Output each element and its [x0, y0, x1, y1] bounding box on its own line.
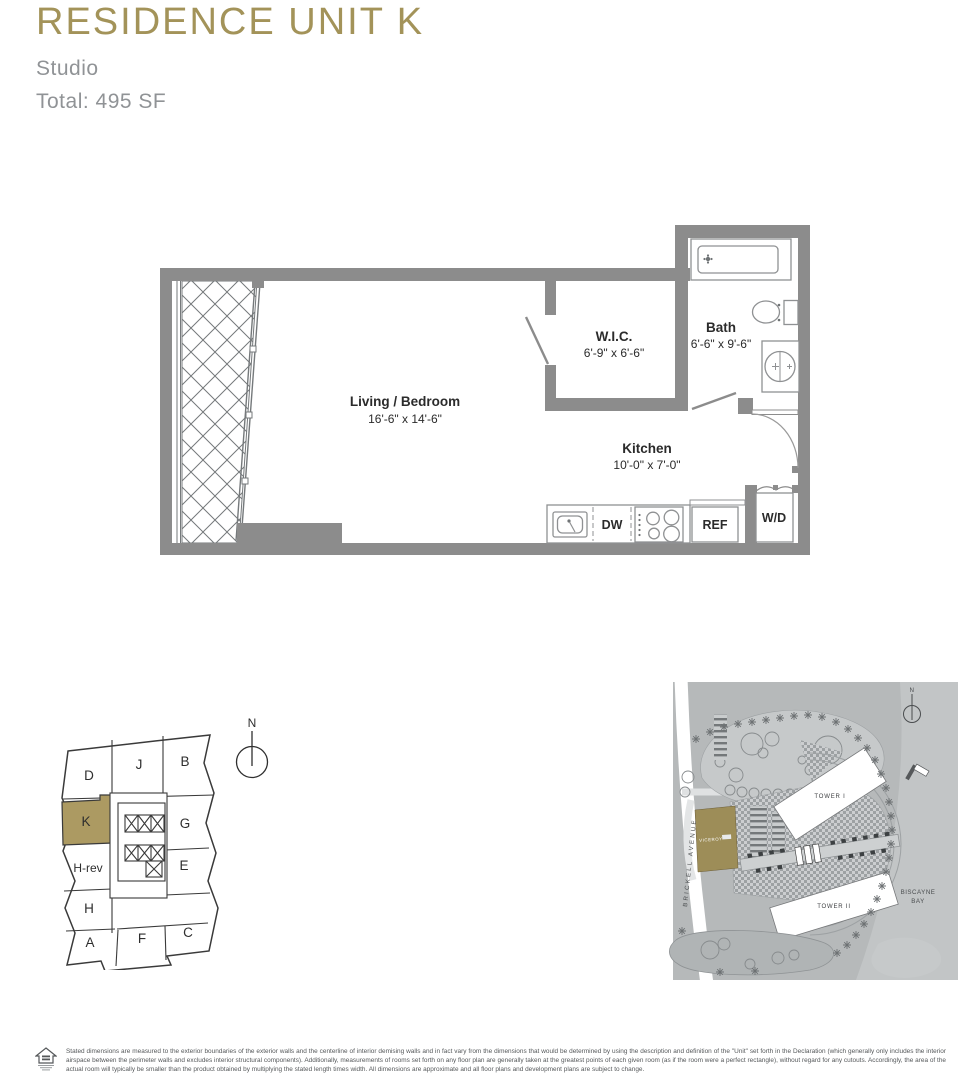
keyplan-unit-c: C [183, 925, 193, 940]
entry-threshold [752, 410, 798, 415]
keyplan-unit-g: G [180, 816, 191, 831]
dishwasher-label: DW [602, 518, 623, 532]
floor-plan-sheet: RESIDENCE UNIT K Studio Total: 495 SF [0, 0, 958, 1081]
bath-fixtures [691, 239, 799, 392]
bath-label: Bath [706, 320, 736, 335]
window-wall [177, 281, 264, 543]
site-plan: VICEROY TOWER I TOWER II [660, 682, 958, 980]
toilet [753, 301, 799, 325]
kitchen-label: Kitchen [622, 441, 672, 456]
page-title: RESIDENCE UNIT K [36, 2, 424, 42]
bath-dims: 6'-6" x 9'-6" [691, 337, 751, 351]
unit-total-area: Total: 495 SF [36, 90, 424, 114]
tower1-label: TOWER I [814, 794, 845, 800]
wic-label: W.I.C. [596, 329, 633, 344]
keyplan-unit-k: K [81, 814, 90, 829]
kitchen-fixtures [547, 493, 793, 543]
kitchen-sink [553, 512, 587, 537]
keyplan-unit-b: B [180, 754, 189, 769]
wic-door [526, 317, 548, 364]
keyplan-unit-e: E [179, 858, 188, 873]
door-track-cap [252, 281, 264, 288]
wic-dims: 6'-9" x 6'-6" [584, 346, 644, 360]
keyplan: D J B K H-rev G E H A F C N [50, 710, 285, 970]
keyplan-unit-j: J [136, 757, 143, 772]
keyplan-north-label: N [248, 716, 257, 730]
keyplan-core [110, 793, 167, 898]
keyplan-unit-a: A [85, 935, 94, 950]
unit-type: Studio [36, 57, 424, 81]
tower2-label: TOWER II [817, 904, 851, 910]
washer-dryer-label: W/D [762, 511, 786, 525]
kitchen-dims: 10'-0" x 7'-0" [613, 458, 680, 472]
entry-door-arc [752, 414, 798, 468]
bath-vanity-sink [762, 341, 799, 392]
stove [635, 507, 683, 542]
equal-housing-logo [35, 1047, 57, 1073]
header: RESIDENCE UNIT K Studio Total: 495 SF [36, 2, 424, 114]
living-bedroom-dims: 16'-6" x 14'-6" [368, 412, 442, 426]
refrigerator-label: REF [703, 518, 728, 532]
site-north-label: N [910, 687, 915, 694]
keyplan-unit-f: F [138, 931, 146, 946]
biscayne-bay-label-line1: BISCAYNE [901, 889, 936, 896]
bathtub [691, 239, 791, 280]
living-bedroom-label: Living / Bedroom [350, 394, 460, 409]
bath-door [692, 393, 736, 409]
parking-row [714, 714, 727, 760]
keyplan-unit-d: D [84, 768, 94, 783]
keyplan-north-arrow: N [237, 716, 268, 778]
keyplan-unit-h: H [84, 901, 94, 916]
floor-plan: Living / Bedroom 16'-6" x 14'-6" W.I.C. … [155, 220, 815, 560]
keyplan-unit-h-rev: H-rev [73, 861, 102, 875]
viceroy-building: VICEROY [695, 806, 738, 872]
footer: Stated dimensions are measured to the ex… [35, 1047, 946, 1074]
biscayne-bay-label-line2: BAY [911, 898, 924, 905]
disclaimer-text: Stated dimensions are measured to the ex… [66, 1047, 946, 1074]
